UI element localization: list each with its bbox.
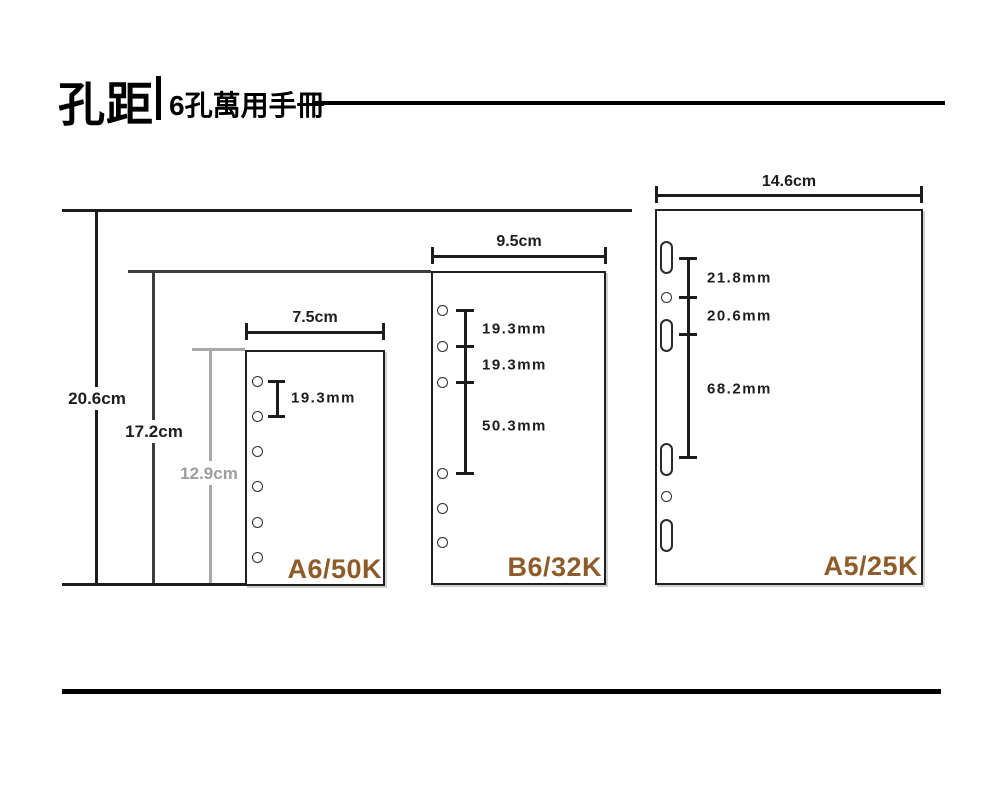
hole-spacing-diagram: 孔距 6孔萬用手冊 20.6cm 17.2cm 12.9cm 7.5cm 19.… xyxy=(0,0,1000,785)
b6-height-measure-line-upper xyxy=(152,270,155,420)
a5-gap-label-3: 68.2mm xyxy=(704,380,775,399)
page-subtitle: 6孔萬用手冊 xyxy=(169,84,325,124)
b6-gap-label-1: 19.3mm xyxy=(479,320,550,339)
a6-height-extension-line xyxy=(192,348,245,351)
a5-gap-label-2: 20.6mm xyxy=(704,307,775,326)
a5-height-extension-line xyxy=(62,209,632,212)
a5-width-label: 14.6cm xyxy=(759,172,819,192)
a5-slot-3 xyxy=(660,443,673,476)
a6-width-dim-tick-right xyxy=(382,323,385,340)
b6-gap-label-3: 50.3mm xyxy=(479,417,550,436)
b6-hole-2 xyxy=(437,341,448,352)
b6-width-dim-line xyxy=(432,255,605,258)
a5-height-measure-line-upper xyxy=(95,209,98,387)
b6-width-label: 9.5cm xyxy=(493,232,544,252)
b6-gap-dim-cap-top xyxy=(456,309,474,312)
a5-height-label: 20.6cm xyxy=(65,388,129,410)
b6-height-extension-line xyxy=(128,270,431,273)
baseline xyxy=(62,583,246,586)
a6-width-dim-line xyxy=(246,331,384,334)
b6-gap-dim-tick-1 xyxy=(456,345,474,348)
a5-height-measure-line-lower xyxy=(95,408,98,585)
a5-width-dim-tick-left xyxy=(655,186,658,203)
a5-gap-dim-line xyxy=(687,259,690,458)
b6-hole-5 xyxy=(437,503,448,514)
b6-hole-3 xyxy=(437,377,448,388)
a5-gap-label-1: 21.8mm xyxy=(704,269,775,288)
a5-hole-1 xyxy=(661,292,672,303)
a6-hole-2 xyxy=(252,411,263,422)
b6-hole-6 xyxy=(437,537,448,548)
b6-gap-label-2: 19.3mm xyxy=(479,356,550,375)
a6-gap-dim-cap-bottom xyxy=(268,415,285,418)
a5-width-dim-tick-right xyxy=(920,186,923,203)
a6-panel xyxy=(245,350,385,586)
a5-width-dim-line xyxy=(656,194,922,197)
title-divider xyxy=(156,76,161,120)
b6-width-dim-tick-left xyxy=(431,247,434,264)
a6-hole-6 xyxy=(252,552,263,563)
b6-hole-4 xyxy=(437,468,448,479)
a6-hole-3 xyxy=(252,446,263,457)
a5-slot-4 xyxy=(660,519,673,552)
b6-gap-dim-line xyxy=(464,311,467,474)
b6-gap-dim-cap-bottom xyxy=(456,472,474,475)
a5-panel-name: A5/25K xyxy=(823,551,918,582)
a5-gap-dim-tick-1 xyxy=(679,296,697,299)
a6-height-measure-line-lower xyxy=(209,485,212,585)
b6-width-dim-tick-right xyxy=(604,247,607,264)
a6-width-dim-tick-left xyxy=(245,323,248,340)
title-rule-line xyxy=(312,101,945,105)
a5-gap-dim-cap-bottom xyxy=(679,456,697,459)
a6-width-label: 7.5cm xyxy=(289,308,340,328)
b6-gap-dim-tick-2 xyxy=(456,381,474,384)
a6-height-label: 12.9cm xyxy=(177,463,241,485)
a6-hole-1 xyxy=(252,376,263,387)
a5-hole-2 xyxy=(661,491,672,502)
b6-height-measure-line-lower xyxy=(152,443,155,585)
a6-hole-4 xyxy=(252,481,263,492)
a5-slot-2 xyxy=(660,319,673,352)
a6-gap-label: 19.3mm xyxy=(288,389,359,408)
a6-panel-name: A6/50K xyxy=(287,554,382,585)
page-title: 孔距 xyxy=(58,66,154,135)
a6-gap-dim-cap-top xyxy=(268,380,285,383)
a6-gap-dim-line xyxy=(276,382,279,417)
b6-panel-name: B6/32K xyxy=(507,552,602,583)
a5-panel xyxy=(655,209,923,585)
b6-height-label: 17.2cm xyxy=(122,421,186,443)
a6-height-measure-line-upper xyxy=(209,348,212,461)
b6-hole-1 xyxy=(437,305,448,316)
a6-hole-5 xyxy=(252,517,263,528)
a5-gap-dim-tick-2 xyxy=(679,333,697,336)
a5-gap-dim-cap-top xyxy=(679,257,697,260)
a5-slot-1 xyxy=(660,241,673,274)
bottom-rule-line xyxy=(62,689,941,694)
